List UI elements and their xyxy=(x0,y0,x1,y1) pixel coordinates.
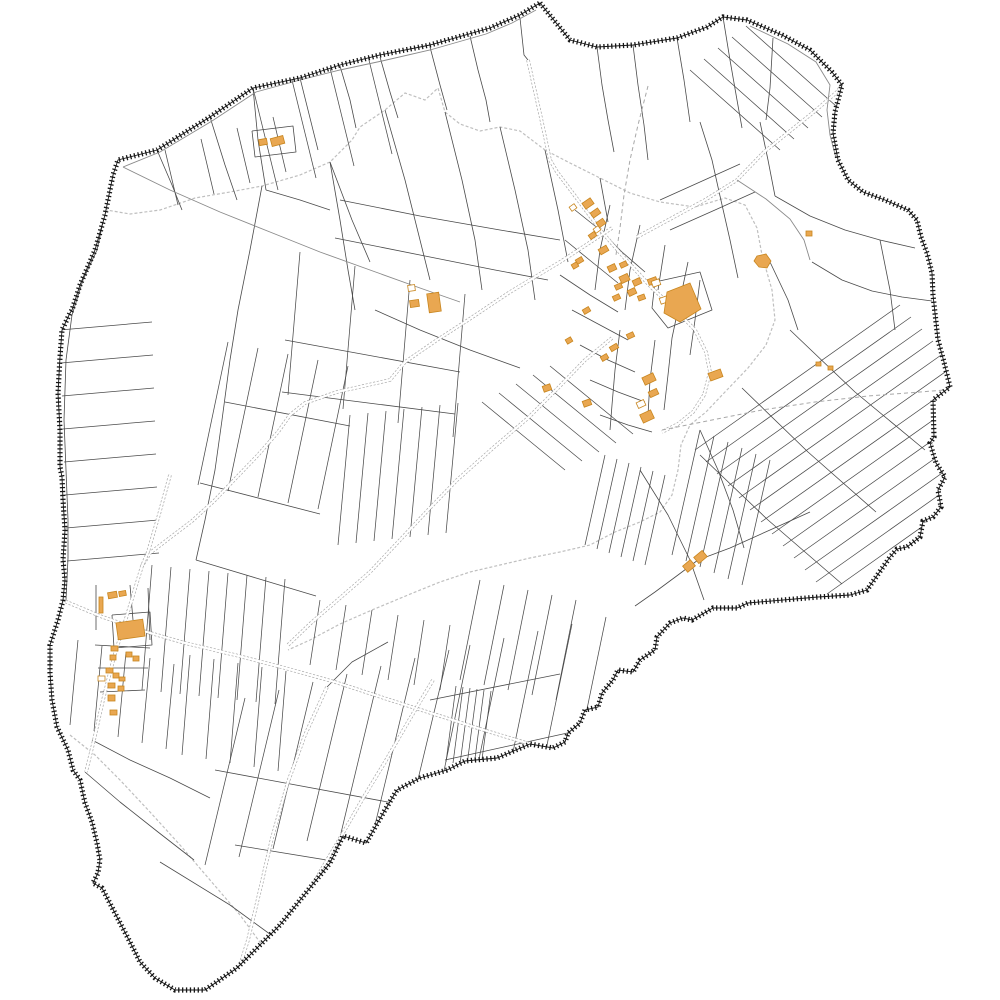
building-footprint xyxy=(582,307,591,315)
building-footprint xyxy=(108,683,115,688)
building-footprint xyxy=(108,591,118,598)
building-footprint xyxy=(828,366,833,370)
building-footprint xyxy=(806,231,812,236)
building-footprint xyxy=(600,354,609,362)
building-footprint xyxy=(642,373,656,385)
building-footprint xyxy=(612,294,620,301)
building-footprint xyxy=(106,668,113,673)
building-footprint xyxy=(627,288,637,297)
building-footprint xyxy=(626,332,634,339)
building-footprint xyxy=(98,676,105,681)
building-footprint xyxy=(108,695,115,701)
building-footprint xyxy=(111,646,118,651)
building-footprint xyxy=(408,285,416,292)
building-footprint xyxy=(118,686,124,691)
building-footprint xyxy=(816,362,821,366)
building-footprint xyxy=(632,278,642,287)
building-footprint xyxy=(607,264,617,273)
municipal-boundary xyxy=(50,3,950,990)
building-footprint xyxy=(110,710,117,715)
building-footprint xyxy=(119,677,125,681)
building-footprint xyxy=(113,673,119,678)
strip-fields-layer xyxy=(60,26,1000,865)
building-footprint xyxy=(116,619,145,640)
building-footprint xyxy=(110,655,116,660)
building-footprint xyxy=(542,384,552,392)
building-footprint xyxy=(582,399,592,407)
building-footprint xyxy=(427,292,442,312)
buildings-layer xyxy=(98,135,833,715)
cadastral-map-canvas xyxy=(0,0,1000,1000)
building-footprint xyxy=(636,400,646,409)
parcel-lines-layer xyxy=(64,17,932,940)
building-footprint xyxy=(126,652,132,657)
building-footprint xyxy=(640,410,655,423)
building-footprint xyxy=(754,254,771,268)
building-footprint xyxy=(119,590,127,596)
building-footprint xyxy=(270,135,285,146)
building-footprint xyxy=(133,656,139,661)
building-footprint xyxy=(410,299,420,307)
cadastral-map-page xyxy=(0,0,1000,1000)
building-footprint xyxy=(99,597,103,613)
building-footprint xyxy=(259,138,268,145)
building-footprint xyxy=(565,337,573,344)
roads-layer xyxy=(62,10,945,972)
building-footprint xyxy=(619,261,627,268)
building-footprint xyxy=(637,294,645,301)
building-footprint xyxy=(614,283,622,290)
